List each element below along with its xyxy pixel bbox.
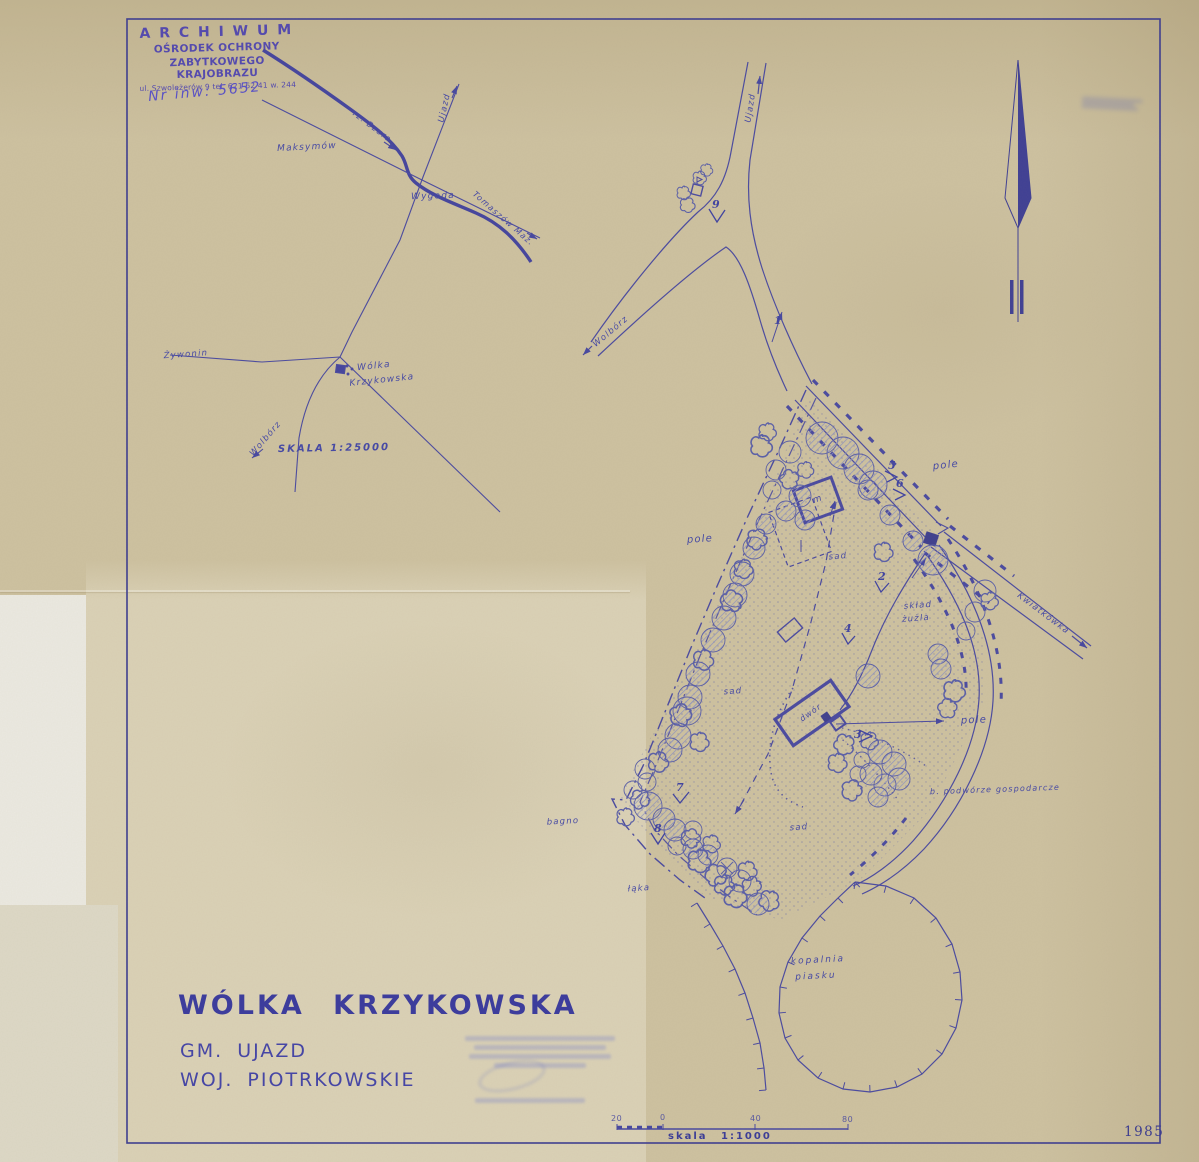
- viewpoint-marker-2: 2: [874, 572, 894, 594]
- viewpoint-marker-8: 8: [650, 824, 670, 846]
- scanned-map-page: A R C H I W U M OŚRODEK OCHRONY ZABYTKOW…: [0, 0, 1199, 1162]
- archive-stamp-line3: ZABYTKOWEGO KRAJOBRAZU: [132, 54, 303, 82]
- map-title: WÓLKA KRZYKOWSKA: [178, 990, 578, 1021]
- label-pole-east: pole: [961, 715, 988, 726]
- viewpoint-number: 1: [774, 314, 782, 327]
- sketch-label-wygoda: Wygoda: [411, 192, 455, 203]
- archive-stamp-line1: A R C H I W U M: [131, 22, 301, 42]
- label-sklad-line1: skład: [904, 601, 933, 611]
- scalebar-tick-80: 80: [842, 1115, 853, 1124]
- paper-grain: [0, 0, 1199, 1162]
- viewpoint-marker-3: 3: [850, 730, 870, 752]
- viewpoint-marker-9: 9: [708, 200, 728, 222]
- map-subtitle-voivodeship: WOJ. PIOTRKOWSKIE: [180, 1069, 416, 1091]
- label-sad-north: sad: [828, 552, 847, 562]
- viewpoint-marker-1: 1: [770, 316, 790, 338]
- label-sad-west: sad: [723, 687, 742, 697]
- sketch-scale-text: SKALA 1:25000: [278, 443, 390, 455]
- scalebar-tick-40: 40: [750, 1114, 761, 1123]
- map-year: 1985: [1124, 1124, 1164, 1140]
- label-sklad-line2: żużla: [902, 614, 930, 624]
- viewpoint-marker-6: 6: [892, 479, 912, 501]
- viewpoint-marker-7: 7: [672, 783, 692, 805]
- map-subtitle-commune: GM. UJAZD: [180, 1040, 307, 1062]
- scalebar-caption: skala 1:1000: [668, 1131, 772, 1142]
- map-linework: [0, 0, 1199, 1162]
- label-bagno: bagno: [547, 817, 580, 827]
- label-sad-south: sad: [789, 823, 808, 833]
- label-laka: łąka: [627, 884, 650, 894]
- scalebar-tick-20: 20: [611, 1114, 622, 1123]
- scalebar-tick-0: 0: [660, 1113, 666, 1122]
- viewpoint-marker-4: 4: [840, 624, 860, 646]
- label-pole-northwest: pole: [687, 534, 714, 546]
